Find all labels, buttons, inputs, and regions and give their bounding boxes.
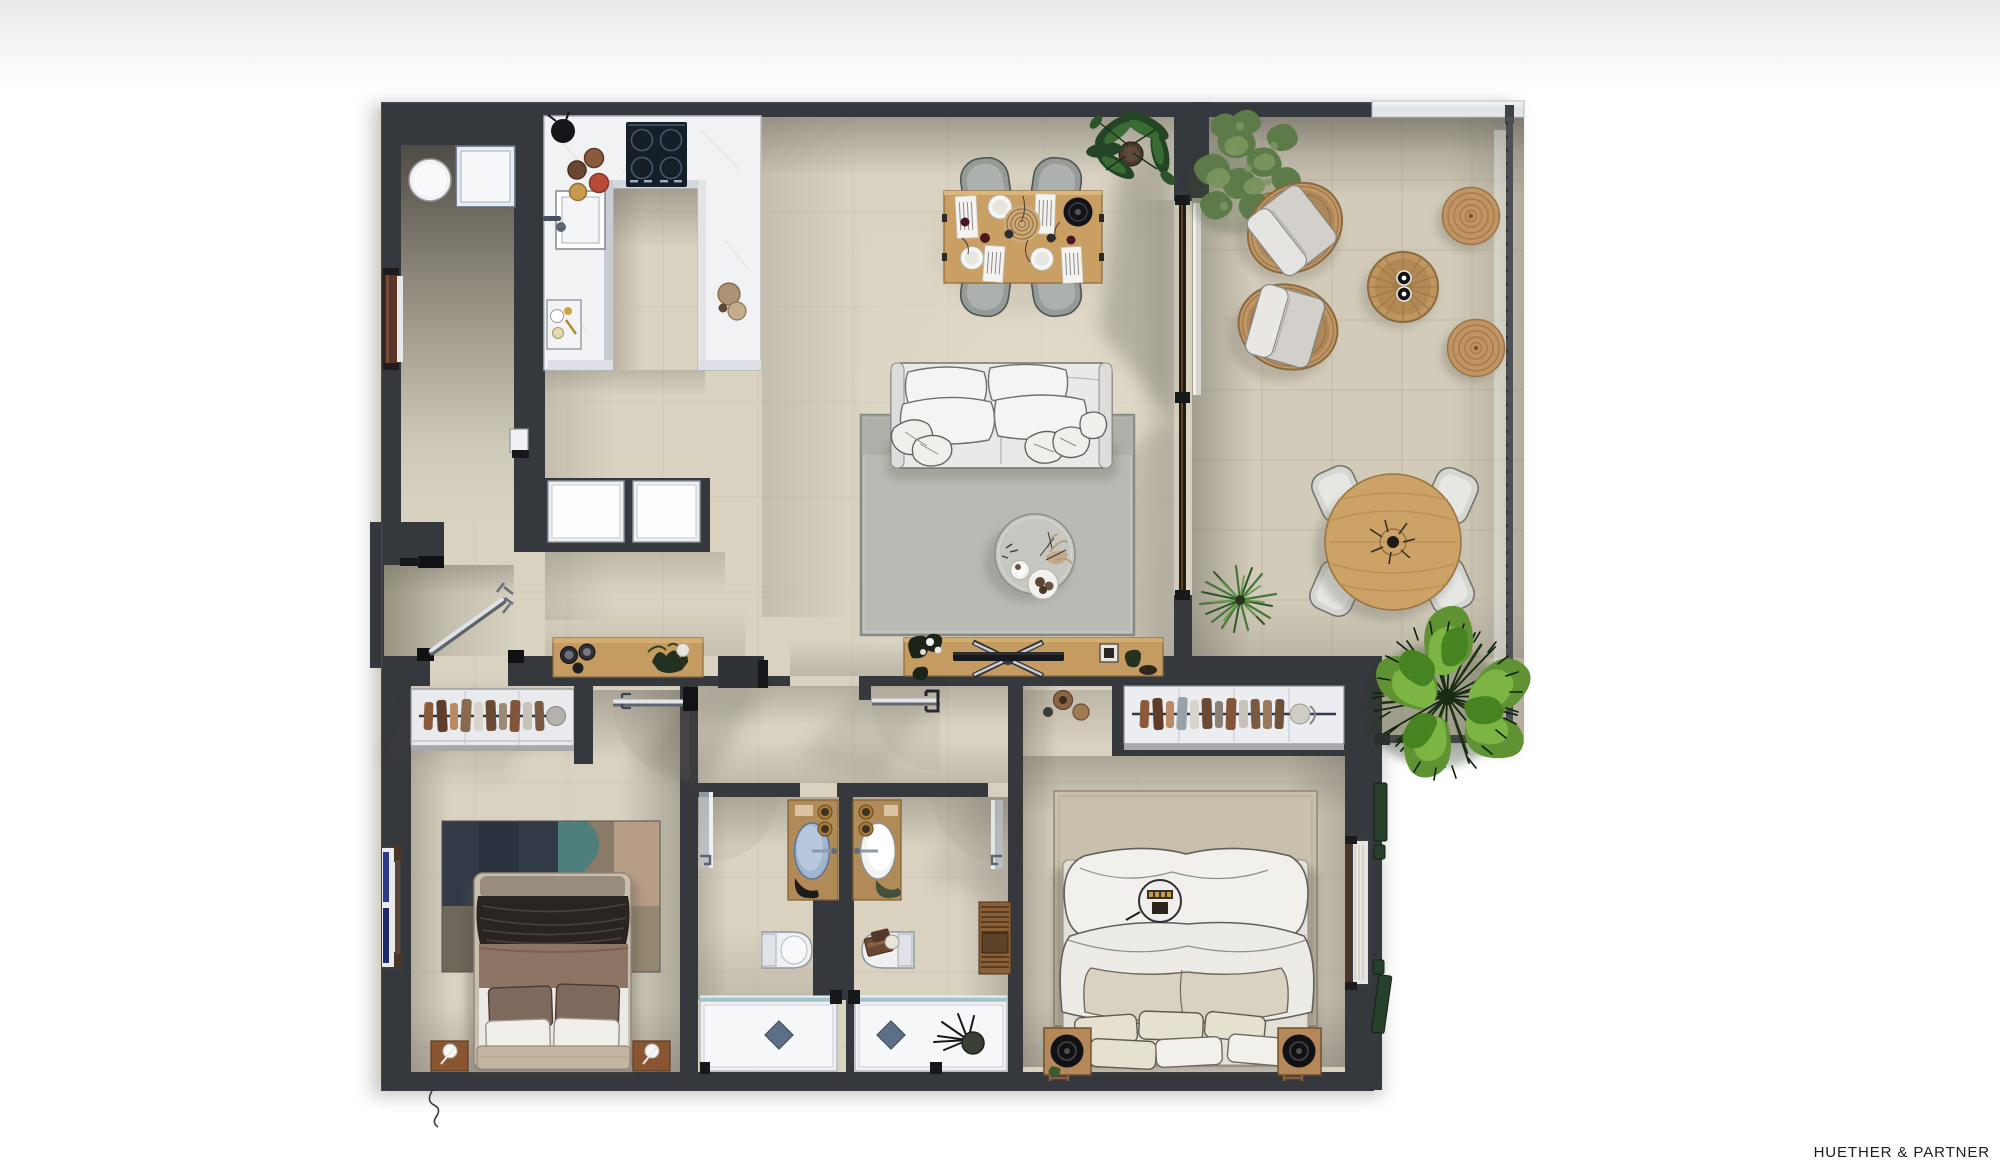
- svg-text:HUETHER & PARTNER: HUETHER & PARTNER: [1814, 1144, 1990, 1161]
